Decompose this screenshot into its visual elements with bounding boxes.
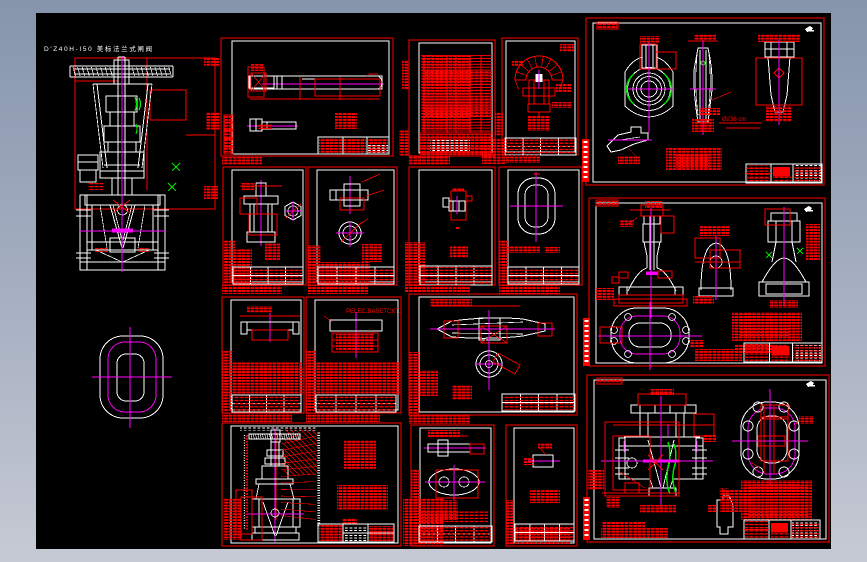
svg-text:Ø236 cm: Ø236 cm: [722, 117, 746, 123]
svg-text:PELEC.BASETCKTJ: PELEC.BASETCKTJ: [346, 309, 402, 315]
